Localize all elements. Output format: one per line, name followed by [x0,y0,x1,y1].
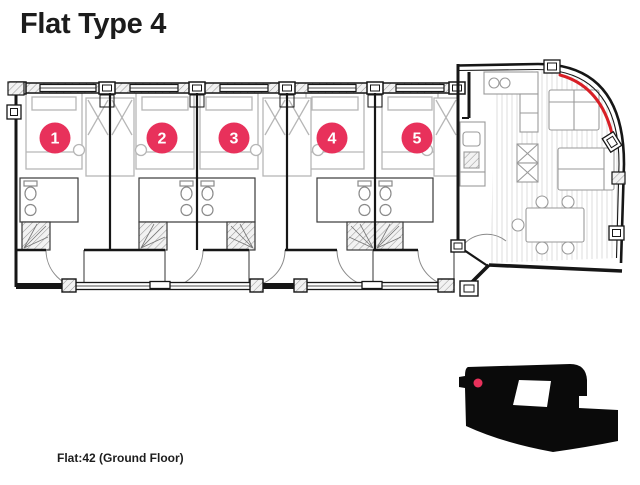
floor-plan-drawing: 1 2 3 4 5 [0,0,640,485]
flat-location-dot [474,379,483,388]
badge-room-5: 5 [402,123,433,154]
ensuite-bathrooms [20,178,433,250]
dining-chair [562,196,574,208]
shower-fan-lines [24,224,401,248]
svg-text:1: 1 [51,131,60,148]
dining-chair [536,196,548,208]
dining-chair [512,219,524,231]
hob-icon [489,78,499,88]
svg-text:3: 3 [230,131,239,148]
building-key-plan [459,364,618,452]
floorplan-page: Flat Type 4 [0,0,640,485]
svg-text:5: 5 [413,131,422,148]
hob-icon [500,78,510,88]
svg-text:4: 4 [328,131,337,148]
showers [22,222,403,250]
dining-chair [536,242,548,254]
flat-floor-label: Flat:42 (Ground Floor) [57,451,184,465]
dining-table [526,208,584,242]
sofa [558,148,614,190]
dining-chair [562,242,574,254]
badge-room-2: 2 [147,123,178,154]
badge-room-3: 3 [219,123,250,154]
building-footprint-silhouette [459,364,618,452]
courtyard-cutout [513,380,551,407]
svg-text:2: 2 [158,131,167,148]
door-swings [46,234,506,288]
sofa [549,90,599,130]
badge-room-1: 1 [40,123,71,154]
badge-room-4: 4 [317,123,348,154]
